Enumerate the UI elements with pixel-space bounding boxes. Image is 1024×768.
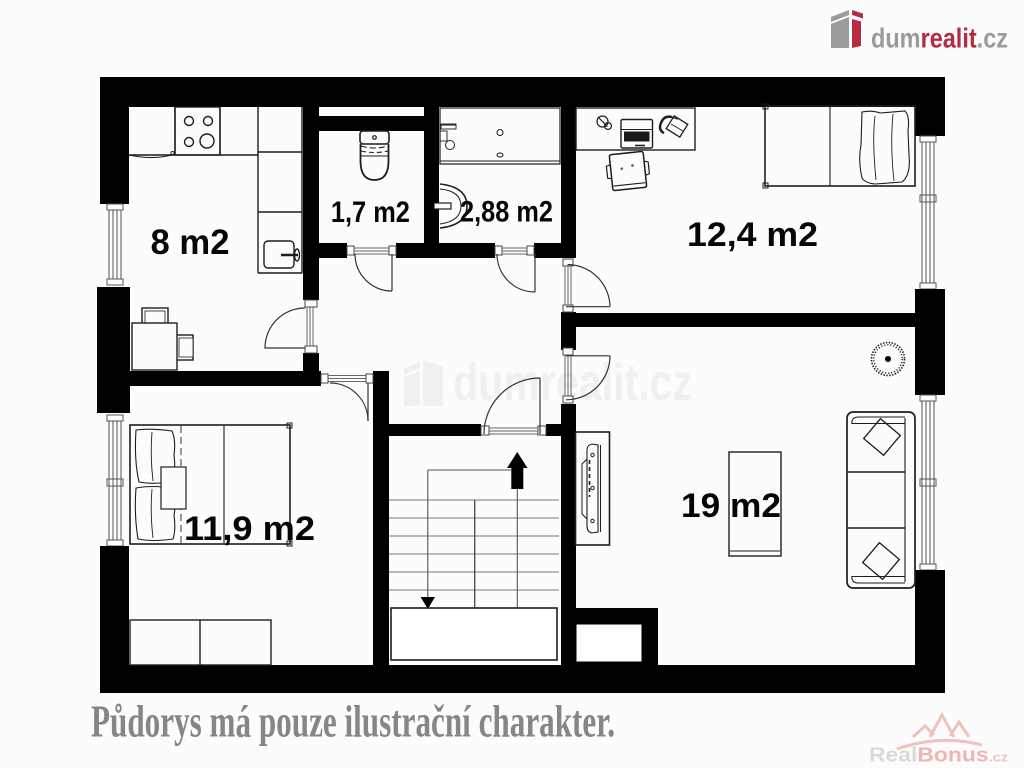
svg-text:dumrealit.cz: dumrealit.cz xyxy=(871,23,1008,54)
svg-text:8 m2: 8 m2 xyxy=(151,222,230,262)
svg-text:1,7 m2: 1,7 m2 xyxy=(331,196,410,229)
svg-text:RealBonus.cz: RealBonus.cz xyxy=(869,744,1009,767)
svg-text:11,9 m2: 11,9 m2 xyxy=(184,510,315,548)
svg-text:Půdorys má pouze ilustrační ch: Půdorys má pouze ilustrační charakter. xyxy=(91,696,615,747)
svg-text:12,4 m2: 12,4 m2 xyxy=(687,216,818,254)
svg-text:19 m2: 19 m2 xyxy=(681,487,781,525)
svg-text:2,88 m2: 2,88 m2 xyxy=(460,196,553,229)
